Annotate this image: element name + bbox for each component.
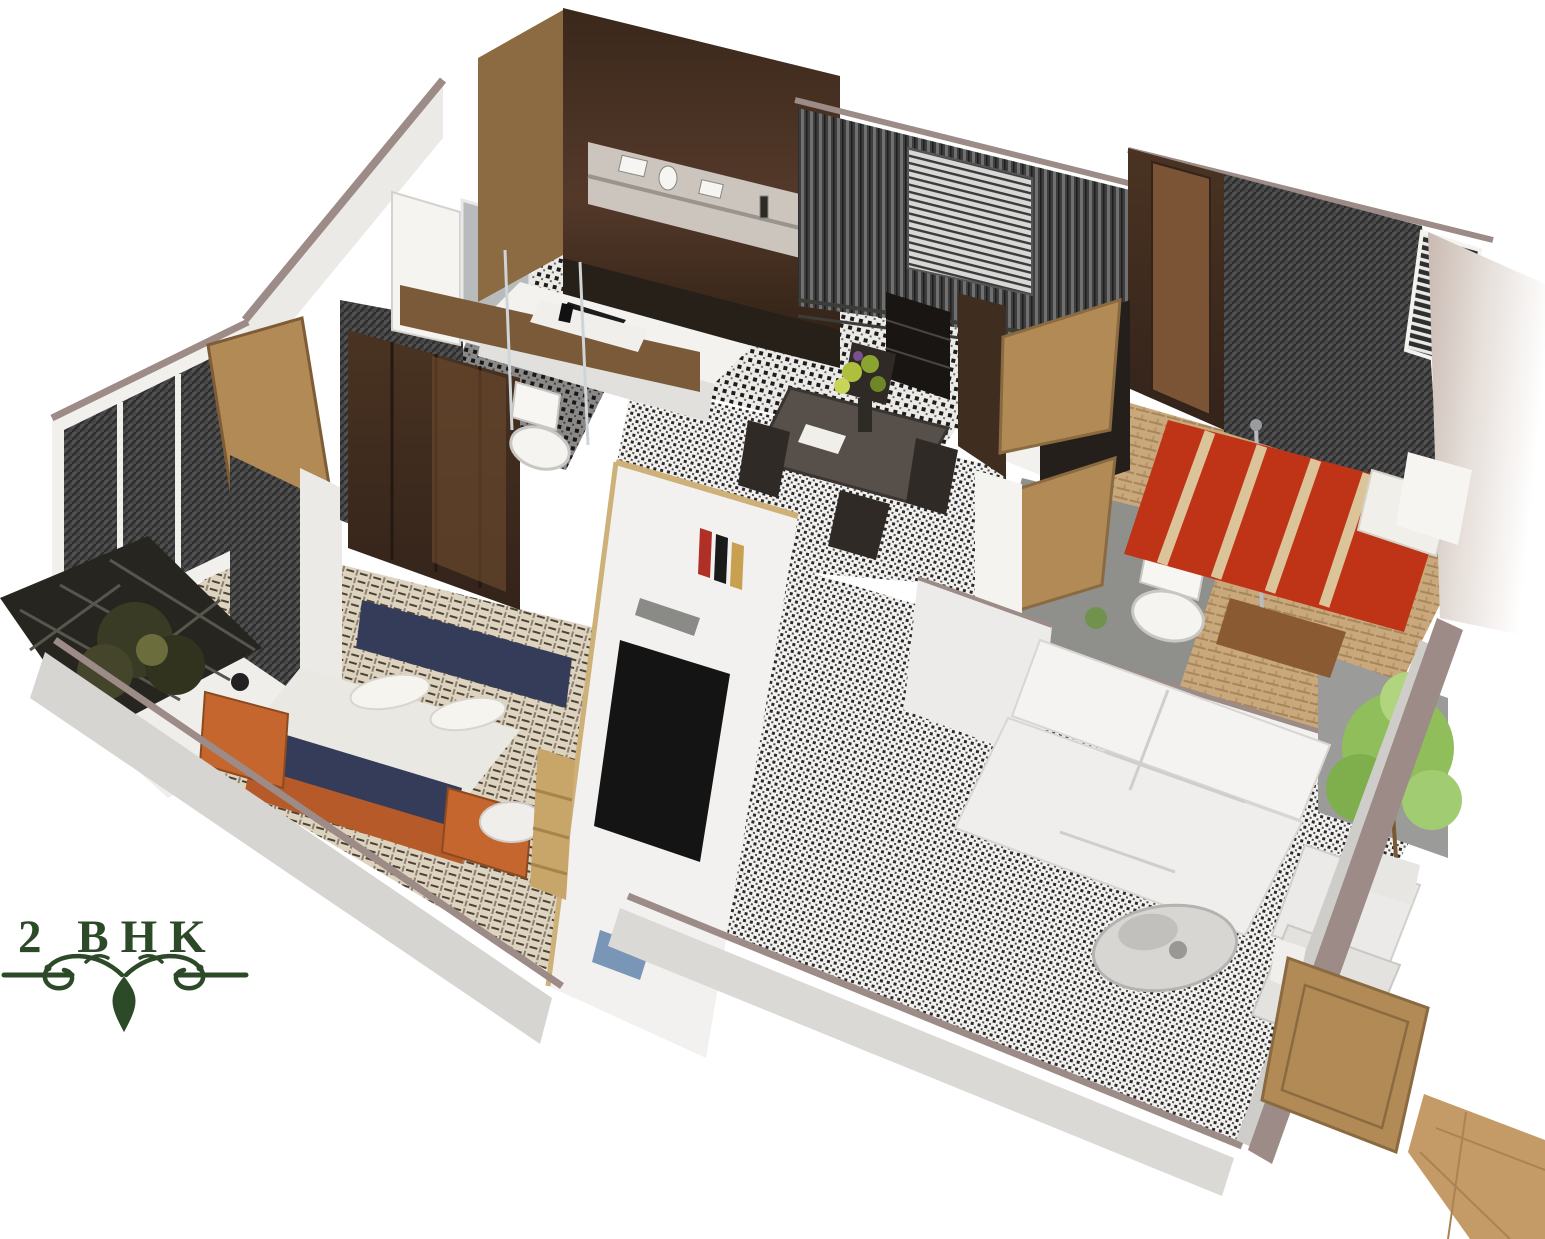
flower-2 <box>861 355 879 373</box>
flourish-dot-left <box>45 965 52 972</box>
entrance-door-leaf <box>1262 958 1428 1152</box>
flower-4 <box>870 376 886 392</box>
book-tan <box>730 542 744 590</box>
flower-purple <box>853 351 863 361</box>
entrance-floor <box>1408 1094 1545 1239</box>
vase <box>858 398 872 432</box>
floral-flourish-icon <box>4 956 246 1030</box>
flourish-dot-right <box>197 965 204 972</box>
plan-title: 2 BHK <box>18 911 218 963</box>
kitchen-side-panel <box>478 10 563 302</box>
bottle-dark <box>760 196 768 218</box>
table-item <box>1169 941 1187 959</box>
shower-head <box>1250 419 1262 431</box>
plant-foliage-3 <box>1402 770 1462 830</box>
book-black <box>714 534 728 584</box>
divider-plant <box>1085 607 1107 629</box>
wardrobe-right-door <box>1152 162 1210 415</box>
wardrobe-left-open-shelves <box>432 356 506 592</box>
balcony-plant-highlight <box>136 634 168 666</box>
entrance-door <box>1262 958 1428 1152</box>
floorplan-poster: 2 BHK <box>0 0 1545 1239</box>
title-block: 2 BHK <box>4 911 246 1030</box>
bedroom-left-corner-post <box>300 468 342 700</box>
book-red <box>698 528 712 578</box>
flourish-drop <box>114 978 135 1030</box>
bedside-lamp <box>231 673 249 691</box>
floorplan-scene: 2 BHK <box>0 0 1545 1239</box>
east-wall-face <box>1428 232 1545 640</box>
jar-1 <box>659 166 677 190</box>
flower-3 <box>834 378 850 394</box>
